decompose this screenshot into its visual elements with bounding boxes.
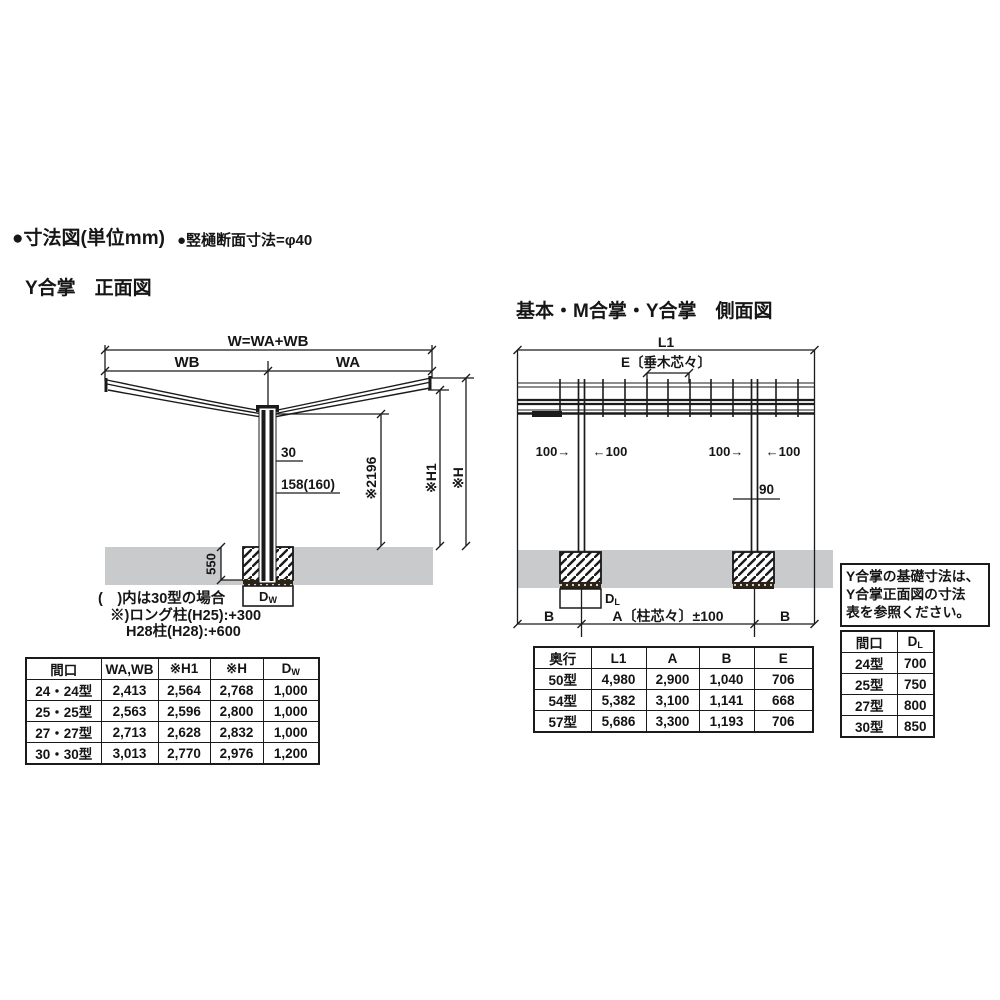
note-line-2: Y合掌正面図の寸法 xyxy=(846,586,984,604)
side-gutter xyxy=(532,411,562,417)
cell: 1,141 xyxy=(699,690,754,711)
table-header-row: 奥行 L1 A B E xyxy=(534,647,813,669)
cell: 706 xyxy=(754,669,813,690)
dimension-drawing-sheet: ●寸法図(単位mm) ●竪樋断面寸法=φ40 Y合掌 正面図 基本・M合掌・Y合… xyxy=(0,0,1000,1000)
header-cell: 間口 xyxy=(841,631,897,653)
table-row: 27型 800 xyxy=(841,695,934,716)
cell: 30型 xyxy=(841,716,897,738)
cell: 1,000 xyxy=(263,680,319,701)
cell: 3,300 xyxy=(646,711,699,733)
cell: 2,628 xyxy=(158,722,210,743)
side-dim-100-left-in: 100→ xyxy=(536,445,571,458)
cell: 800 xyxy=(897,695,934,716)
front-dim-h-label: ※H xyxy=(451,467,465,489)
cell: 5,382 xyxy=(591,690,646,711)
cell: 1,040 xyxy=(699,669,754,690)
sheet-bullet-downpipe-dimension: ●竪樋断面寸法=φ40 xyxy=(177,233,312,248)
header-cell: 間口 xyxy=(26,658,101,680)
side-dim-100-right-in: 100→ xyxy=(709,445,744,458)
cell: 706 xyxy=(754,711,813,733)
cell: 850 xyxy=(897,716,934,738)
cell: 2,770 xyxy=(158,743,210,765)
cell: 2,976 xyxy=(210,743,263,765)
side-dim-a-label: A〔柱芯々〕±100 xyxy=(612,609,723,623)
cell: 30・30型 xyxy=(26,743,101,765)
cell: 57型 xyxy=(534,711,591,733)
front-dim-h1-label: ※H1 xyxy=(424,463,438,493)
front-dim-30-label: 30 xyxy=(281,446,296,460)
front-view-title: Y合掌 正面図 xyxy=(25,279,152,298)
table-row: 30・30型 3,013 2,770 2,976 1,200 xyxy=(26,743,319,765)
front-dim-w-label: W=WA+WB xyxy=(228,334,309,349)
note-line-1: Y合掌の基礎寸法は、 xyxy=(846,568,984,586)
cell: 2,900 xyxy=(646,669,699,690)
front-post xyxy=(256,405,279,583)
cell: 2,596 xyxy=(158,701,210,722)
cell: 3,100 xyxy=(646,690,699,711)
cell: 2,413 xyxy=(101,680,158,701)
cell: 668 xyxy=(754,690,813,711)
table-row: 50型 4,980 2,900 1,040 706 xyxy=(534,669,813,690)
cell: 2,832 xyxy=(210,722,263,743)
cell: 4,980 xyxy=(591,669,646,690)
side-dim-b-right-label: B xyxy=(780,609,790,623)
side-dim-dl-label: DL xyxy=(605,592,620,607)
cell: 2,800 xyxy=(210,701,263,722)
cell: 27型 xyxy=(841,695,897,716)
cell: 2,564 xyxy=(158,680,210,701)
cell: 25型 xyxy=(841,674,897,695)
cell: 27・27型 xyxy=(26,722,101,743)
table-header-row: 間口 WA,WB ※H1 ※H DW xyxy=(26,658,319,680)
sheet-bullet-dimension-figure: ●寸法図(単位mm) xyxy=(12,229,165,248)
cell: 700 xyxy=(897,653,934,674)
depth-dimension-table: 奥行 L1 A B E 50型 4,980 2,900 1,040 706 54… xyxy=(533,646,814,733)
header-cell: A xyxy=(646,647,699,669)
front-note-3: H28柱(H28):+600 xyxy=(126,625,241,640)
foundation-reference-note: Y合掌の基礎寸法は、 Y合掌正面図の寸法 表を参照ください。 xyxy=(840,563,990,627)
table-row: 25・25型 2,563 2,596 2,800 1,000 xyxy=(26,701,319,722)
cell: 25・25型 xyxy=(26,701,101,722)
header-cell: 奥行 xyxy=(534,647,591,669)
front-note-2: ※)ロング柱(H25):+300 xyxy=(110,609,261,624)
front-note-1: ( )内は30型の場合 xyxy=(98,592,225,607)
side-view-title: 基本・M合掌・Y合掌 側面図 xyxy=(516,302,773,321)
front-dim-550-label: 550 xyxy=(205,553,218,575)
cell: 1,200 xyxy=(263,743,319,765)
note-line-3: 表を参照ください。 xyxy=(846,604,984,622)
cell: 2,563 xyxy=(101,701,158,722)
cell: 1,000 xyxy=(263,722,319,743)
table-row: 54型 5,382 3,100 1,141 668 xyxy=(534,690,813,711)
header-cell: L1 xyxy=(591,647,646,669)
header-cell: B xyxy=(699,647,754,669)
side-dim-100-right-out: ←100 xyxy=(766,445,801,458)
header-cell: E xyxy=(754,647,813,669)
side-dim-b-left-label: B xyxy=(544,609,554,623)
table-header-row: 間口 DL xyxy=(841,631,934,653)
front-dim-dw-label: DW xyxy=(259,590,277,605)
side-dim-100-left-out: ←100 xyxy=(593,445,628,458)
table-row: 30型 850 xyxy=(841,716,934,738)
cell: 1,000 xyxy=(263,701,319,722)
side-rafters xyxy=(560,379,798,417)
cell: 2,768 xyxy=(210,680,263,701)
cell: 5,686 xyxy=(591,711,646,733)
table-row: 25型 750 xyxy=(841,674,934,695)
cell: 1,193 xyxy=(699,711,754,733)
table-row: 24・24型 2,413 2,564 2,768 1,000 xyxy=(26,680,319,701)
side-dl-box xyxy=(560,589,601,608)
table-row: 57型 5,686 3,300 1,193 706 xyxy=(534,711,813,733)
cell: 3,013 xyxy=(101,743,158,765)
cell: 54型 xyxy=(534,690,591,711)
front-dim-158-label: 158(160) xyxy=(281,478,335,492)
side-dim-l1-label: L1 xyxy=(658,335,674,349)
side-roof-beams xyxy=(518,383,815,414)
cell: 24型 xyxy=(841,653,897,674)
front-dim-wb-label: WB xyxy=(175,355,200,370)
front-dimension-table: 間口 WA,WB ※H1 ※H DW 24・24型 2,413 2,564 2,… xyxy=(25,657,320,765)
drawing-linework xyxy=(0,0,1000,1000)
cell: 50型 xyxy=(534,669,591,690)
front-dim-2196-label: ※2196 xyxy=(364,457,378,500)
cell: 24・24型 xyxy=(26,680,101,701)
header-cell-dl: DL xyxy=(897,631,934,653)
cell: 2,713 xyxy=(101,722,158,743)
front-view-drawing xyxy=(101,345,474,606)
front-dim-wa-label: WA xyxy=(336,355,360,370)
cell: 750 xyxy=(897,674,934,695)
side-dim-e-label: E〔垂木芯々〕 xyxy=(621,356,711,370)
table-row: 27・27型 2,713 2,628 2,832 1,000 xyxy=(26,722,319,743)
dl-dimension-table: 間口 DL 24型 700 25型 750 27型 800 30型 850 xyxy=(840,630,935,738)
header-cell-dw: DW xyxy=(263,658,319,680)
side-view-drawing xyxy=(514,346,834,637)
header-cell: WA,WB xyxy=(101,658,158,680)
header-cell: ※H xyxy=(210,658,263,680)
table-row: 24型 700 xyxy=(841,653,934,674)
header-cell: ※H1 xyxy=(158,658,210,680)
side-dim-90-label: 90 xyxy=(759,483,774,497)
